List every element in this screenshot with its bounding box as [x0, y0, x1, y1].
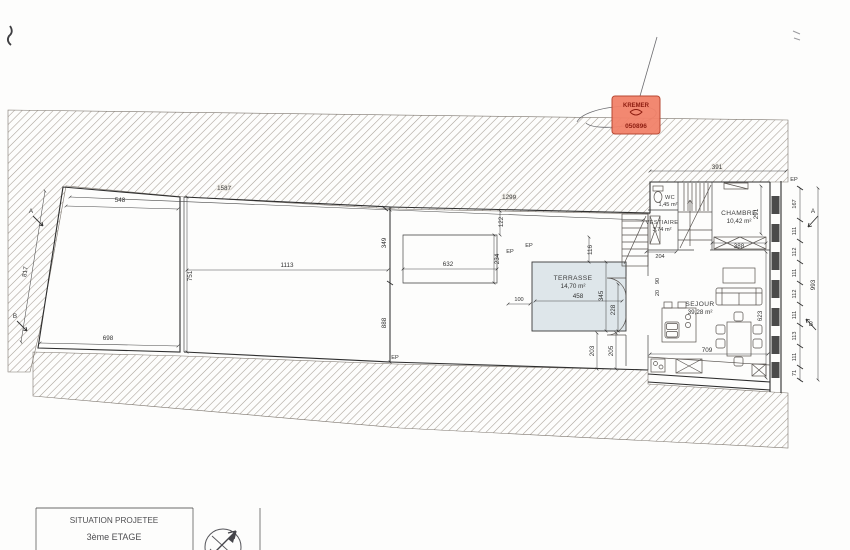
dim-terrasse-height: 345	[598, 290, 605, 301]
kitchen-island	[662, 302, 696, 342]
dim-left-top: 548	[115, 197, 126, 204]
floor-plan-scan: 548 698 751 817 1113 349 888 1587 1299 6…	[0, 0, 850, 550]
dim-terrasse-width: 458	[573, 293, 584, 300]
section-b-left: B	[13, 313, 17, 320]
dim-sejour-width: 709	[702, 347, 713, 354]
chambre-name: CHAMBRE	[721, 210, 757, 217]
dim-mid-lower: 888	[381, 317, 388, 328]
dim-facade-8: 111	[792, 353, 798, 362]
dim-facade-total: 993	[810, 279, 817, 290]
toilet-fixture	[653, 186, 663, 203]
ep-label-1: EP	[506, 249, 514, 255]
dim-door-left: 203	[589, 345, 596, 356]
wc-name: WC	[665, 195, 675, 201]
ep-label-4: EP	[790, 177, 798, 183]
ep-label-2: EP	[525, 243, 533, 249]
dim-left-right: 751	[187, 270, 194, 281]
hatch-neighbor-buildings	[8, 110, 788, 448]
dim-mid-width: 1113	[280, 262, 294, 269]
floor-plan-drawing: 548 698 751 817 1113 349 888 1587 1299 6…	[0, 0, 850, 550]
dim-stair-a: 90	[655, 278, 661, 284]
dim-facade-7: 113	[792, 332, 798, 341]
chambre-area: 10,42 m²	[727, 218, 752, 225]
dim-chambre-width: 388	[734, 243, 745, 250]
dim-vestiaire-width: 204	[655, 254, 664, 260]
dim-door-right: 205	[608, 345, 615, 356]
facade-windows	[772, 196, 780, 378]
dim-facade-5: 112	[792, 290, 798, 299]
dim-stair-b: 20	[655, 290, 661, 296]
dim-terrasse-top: 116	[587, 244, 594, 255]
dim-skylight-offset: 122	[498, 216, 505, 227]
stamp-name: KREMER	[623, 103, 650, 109]
sejour-area: 39,28 m²	[688, 309, 713, 316]
staircase-upper	[678, 183, 712, 248]
compass-north-arrow	[205, 529, 241, 550]
terrasse-area: 14,70 m²	[561, 283, 586, 290]
terrasse-name: TERRASSE	[554, 275, 593, 282]
sejour-name: SEJOUR	[685, 301, 714, 308]
dim-facade-3: 112	[792, 248, 798, 257]
kitchen-counter	[648, 357, 770, 376]
title-row2: 3ème ETAGE	[87, 532, 142, 542]
dining-table-set	[716, 312, 762, 366]
vestiaire-name: VESTIAIRE	[646, 220, 679, 226]
vestiaire-area: 3,74 m²	[653, 227, 672, 233]
dim-skylight-width: 632	[443, 261, 454, 268]
dim-top-right-width: 391	[712, 164, 723, 171]
dim-facade-2: 111	[792, 227, 798, 236]
dim-sejour-height: 623	[757, 310, 764, 321]
scan-marks	[8, 26, 800, 45]
title-row1: SITUATION PROJETEE	[70, 516, 159, 525]
dim-facade-4: 111	[792, 269, 798, 278]
wc-area: 1,45 m²	[659, 202, 678, 208]
stamp-number: 050896	[625, 123, 647, 130]
dim-terrasse-right: 228	[610, 304, 617, 315]
ep-label-3: EP	[391, 355, 399, 361]
dim-facade-1: 167	[792, 199, 798, 208]
dim-left-bottom: 698	[103, 335, 114, 342]
dim-facade-9: 71	[792, 370, 798, 376]
dim-top-run-right: 1299	[502, 194, 517, 202]
dim-skylight-height: 234	[494, 253, 501, 264]
dim-mid-upper: 349	[381, 237, 388, 248]
section-a-right: A	[811, 208, 816, 215]
dim-facade-6: 111	[792, 311, 798, 320]
staircase-lower	[622, 214, 648, 266]
sofa	[716, 268, 762, 305]
dim-top-run-left: 1587	[217, 185, 232, 193]
dim-terrasse-left: 100	[514, 297, 523, 303]
